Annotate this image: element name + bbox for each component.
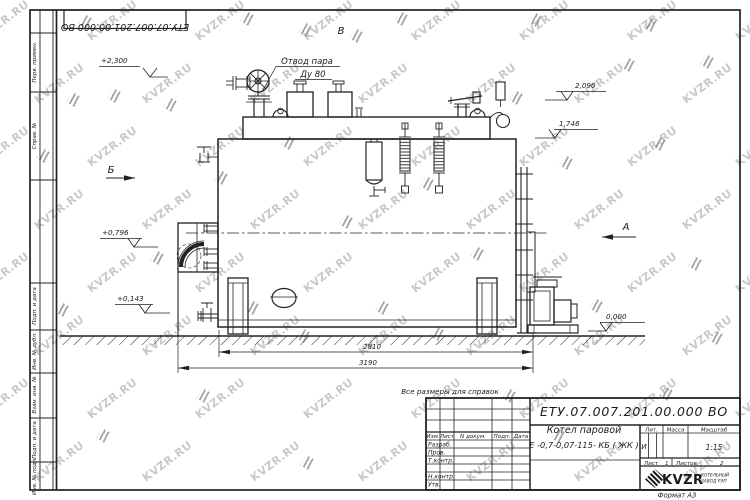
sheets-value: 2 (720, 461, 724, 467)
boiler-body (186, 117, 548, 327)
elevation-0143: +0,143 (117, 294, 144, 303)
side-label: Перв. примен. (32, 41, 38, 83)
sheet-label: Лист (643, 461, 659, 467)
scale-label: Масштаб (701, 428, 728, 434)
level-sensor (490, 82, 510, 128)
manhole (270, 289, 298, 308)
title-block-doc-number: ЕТУ.07.007.201.00.000 ВО (540, 404, 728, 419)
lit-label: Лит. (644, 428, 658, 434)
lever-safety-valve (448, 92, 482, 117)
col-list: Лист (439, 434, 455, 440)
drum-valve-boxes (287, 81, 363, 117)
elevation-2090: 2,090 (575, 81, 596, 90)
scale-value: 1:15 (706, 443, 723, 452)
row-tkontr: Т.контр. (428, 458, 454, 465)
elevation-0000: 0,000 (606, 312, 627, 321)
elevation-1746: 1,746 (559, 119, 580, 128)
brand-kvzr: KVZR (662, 473, 704, 488)
col-data: Дата (513, 434, 529, 440)
view-label-a: А (622, 222, 630, 233)
elevation-symbols (99, 67, 645, 332)
col-podp: Подп. (494, 434, 511, 440)
view-arrows (106, 175, 636, 240)
product-name-line2: Е -0,7-0,07-115- КБ ( ЖК ) (529, 440, 638, 450)
mass-label: Масса (667, 428, 685, 434)
side-label: Инв. № дубл. (32, 332, 38, 370)
boiler-drawing (60, 67, 645, 346)
side-label: Подп. и дата (32, 421, 38, 459)
sheets-label: Листов (675, 461, 697, 467)
elevation-2300: +2,300 (101, 56, 128, 65)
brand-sub2: ЗАВОД РЭП (701, 479, 727, 485)
lit-value: И (641, 443, 647, 451)
row-utv: Утв. (428, 482, 441, 489)
view-label-v: В (338, 26, 345, 37)
side-label: Справ. № (32, 122, 38, 149)
doc-number-top: ЕТУ.07.007.201.00.000 ВО (60, 21, 189, 32)
drawing-sheet: Перв. примен. Справ. № Подп. и дата Инв.… (0, 0, 750, 500)
support-skids (228, 278, 497, 334)
steam-outlet-valve (226, 70, 272, 117)
front-fittings (197, 147, 218, 322)
view-label-b: Б (108, 165, 115, 176)
callout-du80: Ду 80 (299, 70, 325, 80)
row-razrab: Разраб. (428, 442, 452, 449)
side-label: Подп. и дата (32, 287, 38, 325)
dimension-3190: 3190 (359, 359, 377, 367)
col-ndokum: N докум. (460, 434, 486, 440)
sheet-value: 1 (665, 461, 669, 467)
row-nkontr: Н.контр. (428, 474, 455, 481)
side-stamp-labels: Перв. примен. Справ. № Подп. и дата Инв.… (32, 41, 38, 495)
title-block-text: ЕТУ.07.007.201.00.000 ВО Изм. Лист N док… (426, 404, 729, 500)
burner (177, 223, 218, 336)
elevation-0796: +0,796 (102, 228, 129, 237)
reference-note: Все размеры для справок (401, 387, 499, 396)
separator (366, 139, 385, 196)
level-gauge-columns (399, 123, 445, 193)
lifting-lugs (273, 108, 485, 117)
brand-sub1: КОТЕЛЬНЫЙ (701, 472, 730, 479)
dimension-2810: 2810 (363, 343, 381, 351)
callout-steam-outlet: Отвод пара (281, 57, 333, 67)
side-label: Инв. № подл. (32, 457, 38, 495)
side-label: Взам. инв. № (32, 376, 38, 414)
col-izm: Изм. (426, 434, 439, 440)
row-prov: Пров. (428, 450, 446, 457)
ground-line (60, 336, 645, 345)
format-label: Формат А3 (658, 492, 697, 500)
product-name-line1: Котел паровой (547, 425, 622, 436)
